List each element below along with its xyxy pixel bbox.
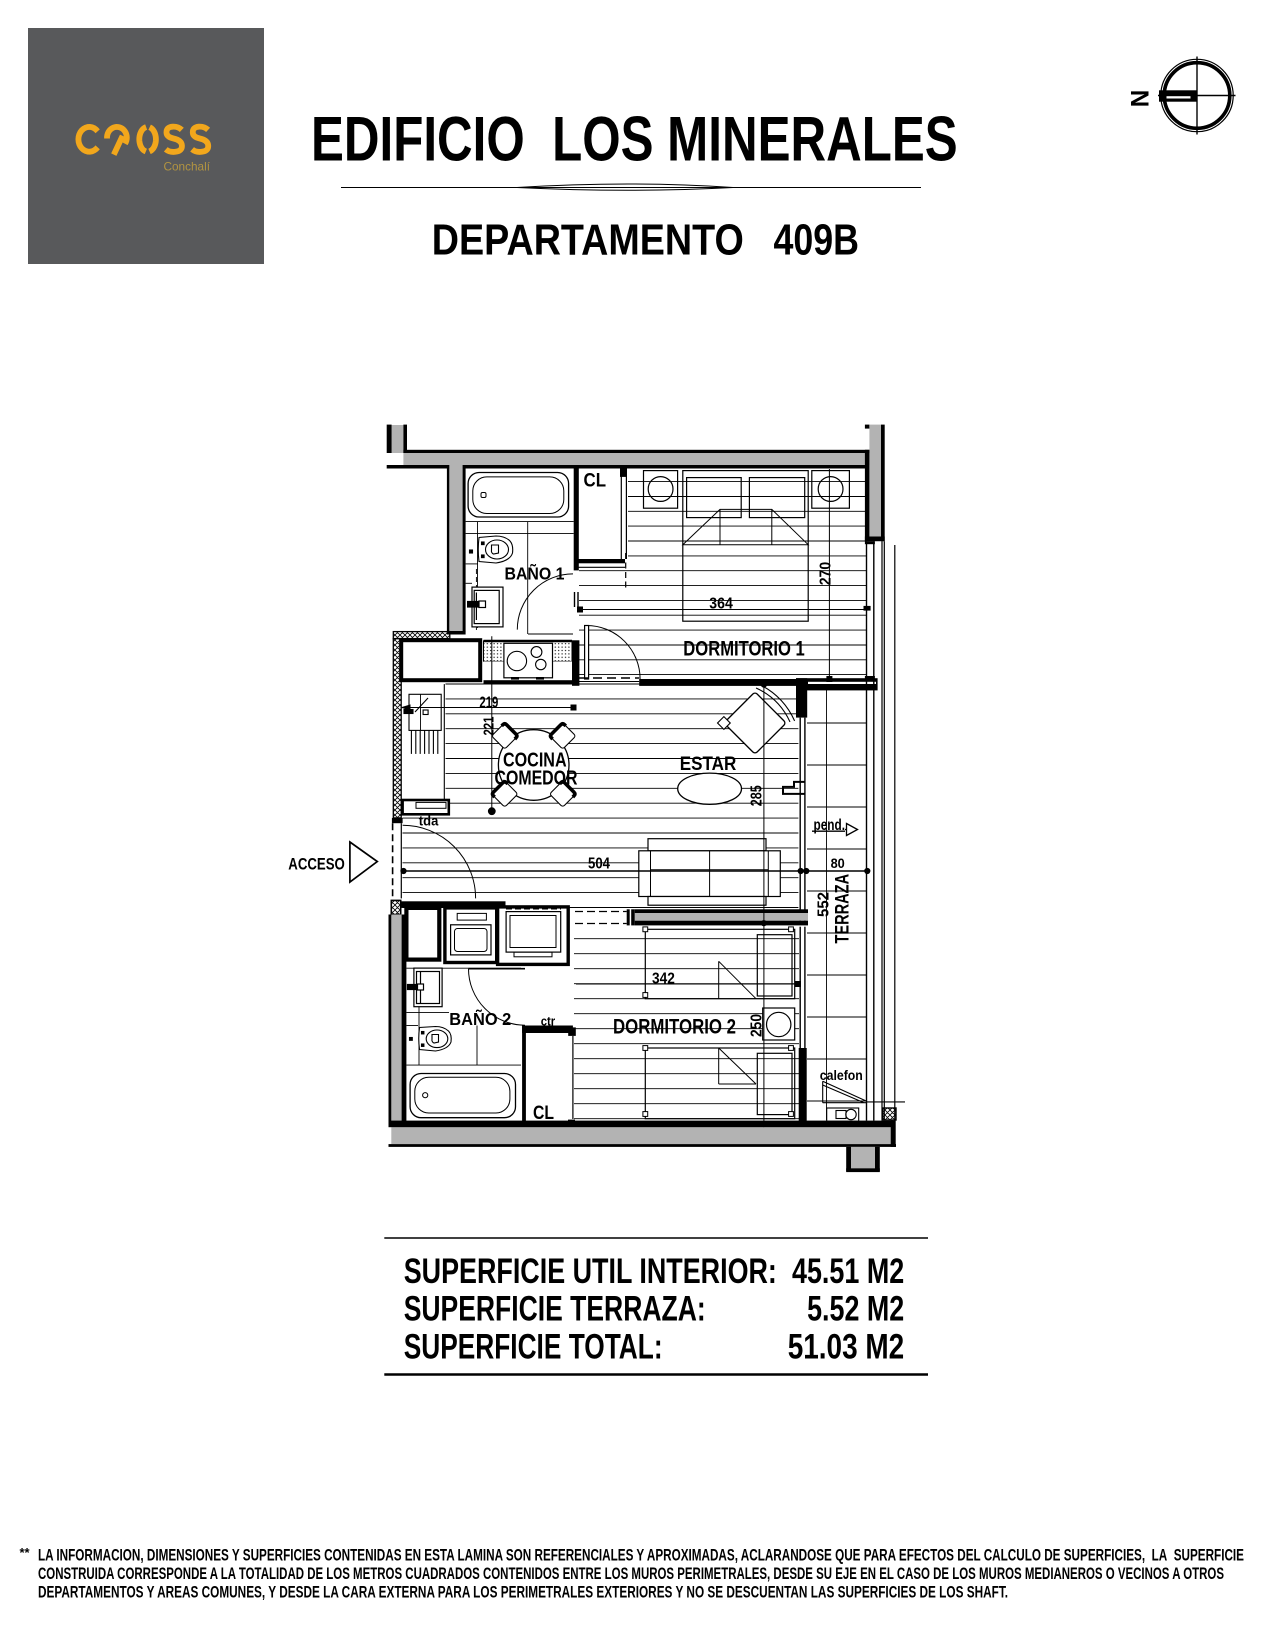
- svg-text:250: 250: [748, 1014, 765, 1037]
- svg-text:270: 270: [817, 562, 834, 586]
- svg-text:DORMITORIO 2: DORMITORIO 2: [613, 1016, 736, 1039]
- svg-text:pend.: pend.: [814, 817, 846, 834]
- svg-text:EDIFICIO LOS MINERALES: EDIFICIO LOS MINERALES: [311, 104, 958, 174]
- svg-text:219: 219: [479, 694, 498, 711]
- svg-text:CL: CL: [533, 1103, 554, 1124]
- svg-text:552: 552: [816, 892, 833, 917]
- svg-text:SUPERFICIE UTIL INTERIOR:: SUPERFICIE UTIL INTERIOR:: [404, 1251, 777, 1291]
- svg-text:5.52 M2: 5.52 M2: [807, 1289, 904, 1329]
- svg-text:TERRAZA: TERRAZA: [831, 874, 853, 944]
- svg-text:ESTAR: ESTAR: [680, 753, 737, 775]
- svg-text:80: 80: [831, 856, 845, 871]
- svg-text:N: N: [1127, 90, 1155, 108]
- svg-text:LA INFORMACION, DIMENSIONES Y: LA INFORMACION, DIMENSIONES Y SUPERFICIE…: [38, 1547, 1244, 1565]
- svg-text:**: **: [20, 1545, 31, 1560]
- svg-text:DORMITORIO 1: DORMITORIO 1: [683, 638, 805, 661]
- svg-text:Conchalí: Conchalí: [164, 159, 211, 173]
- svg-text:221: 221: [481, 717, 498, 736]
- svg-text:SUPERFICIE TERRAZA:: SUPERFICIE TERRAZA:: [404, 1289, 706, 1329]
- svg-text:504: 504: [588, 855, 610, 872]
- svg-text:SUPERFICIE TOTAL:: SUPERFICIE TOTAL:: [404, 1327, 663, 1367]
- svg-text:COMEDOR: COMEDOR: [495, 767, 578, 790]
- svg-text:ctr: ctr: [541, 1015, 556, 1029]
- svg-text:364: 364: [709, 596, 733, 613]
- svg-text:CL: CL: [584, 471, 607, 492]
- svg-text:285: 285: [748, 785, 765, 806]
- svg-text:342: 342: [652, 971, 675, 988]
- svg-text:CONSTRUIDA CORRESPONDE A LA TO: CONSTRUIDA CORRESPONDE A LA TOTALIDAD DE…: [38, 1565, 1224, 1583]
- svg-text:DEPARTAMENTOS Y AREAS COMUNES,: DEPARTAMENTOS Y AREAS COMUNES, Y DESDE L…: [38, 1584, 1008, 1602]
- svg-text:BAÑO 2: BAÑO 2: [449, 1008, 511, 1029]
- svg-text:DEPARTAMENTO: DEPARTAMENTO: [432, 216, 744, 265]
- svg-text:ACCESO: ACCESO: [288, 856, 345, 874]
- svg-text:BAÑO 1: BAÑO 1: [505, 563, 565, 584]
- svg-text:51.03 M2: 51.03 M2: [788, 1327, 905, 1367]
- svg-text:calefon: calefon: [820, 1068, 863, 1083]
- svg-text:tda: tda: [419, 814, 439, 829]
- svg-text:409B: 409B: [774, 216, 860, 265]
- svg-text:45.51 M2: 45.51 M2: [792, 1251, 904, 1291]
